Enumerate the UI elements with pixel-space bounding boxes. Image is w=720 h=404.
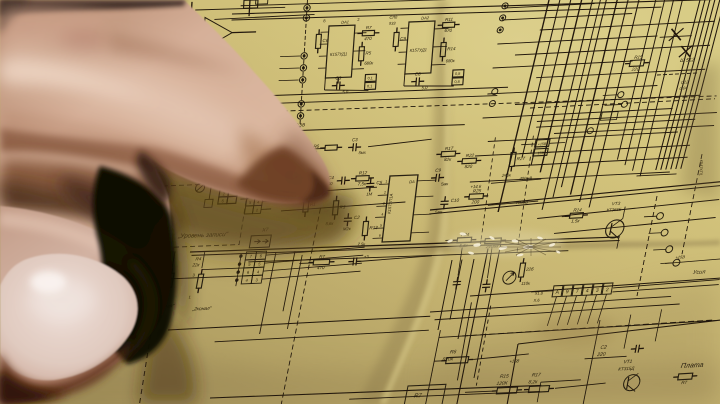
svg-text:Ш 512: Ш 512	[679, 57, 695, 64]
svg-text:„2конал": „2конал"	[191, 306, 212, 313]
svg-text:DА2: DА2	[421, 15, 430, 20]
svg-text:226: 226	[525, 267, 535, 272]
svg-text:5мк: 5мк	[435, 209, 443, 214]
svg-text:К157УД1: К157УД1	[410, 47, 428, 53]
svg-text:820: 820	[464, 164, 473, 169]
svg-text:+15В: +15В	[537, 142, 547, 146]
svg-text:933: 933	[389, 21, 397, 26]
svg-text:220: 220	[630, 66, 640, 71]
svg-text:R14: R14	[573, 207, 583, 212]
svg-text:220: 220	[596, 352, 607, 359]
svg-text:7,5к: 7,5к	[357, 181, 367, 186]
svg-text:R5: R5	[365, 50, 372, 55]
svg-text:+15В: +15В	[675, 254, 686, 259]
svg-text:R13: R13	[369, 225, 378, 230]
svg-text:R27: R27	[516, 156, 525, 161]
svg-text:С9: С9	[400, 36, 407, 41]
svg-text:СЛ0: СЛ0	[389, 14, 398, 19]
svg-text:Плата: Плата	[680, 362, 704, 370]
svg-text:0,1: 0,1	[367, 84, 373, 88]
svg-text:R14: R14	[447, 46, 456, 51]
svg-text:200: 200	[470, 199, 480, 204]
svg-text:С8: С8	[415, 71, 422, 76]
svg-text:+14,6: +14,6	[470, 184, 482, 189]
svg-text:К157УД1: К157УД1	[330, 51, 348, 57]
svg-text:5мк: 5мк	[441, 181, 449, 186]
svg-text:670: 670	[444, 28, 452, 33]
svg-text:R12: R12	[359, 170, 368, 175]
svg-text:R7: R7	[366, 25, 373, 30]
svg-text:470: 470	[317, 265, 326, 270]
svg-text:DА1: DА1	[341, 19, 349, 24]
svg-text:R17: R17	[531, 372, 541, 378]
svg-text:R7: R7	[319, 254, 326, 259]
svg-text:VТ1: VТ1	[623, 359, 633, 365]
svg-text:С3: С3	[352, 137, 359, 142]
svg-text:240к: 240к	[501, 172, 513, 177]
svg-text:1М: 1М	[366, 191, 373, 196]
svg-text:0,1: 0,1	[367, 76, 373, 80]
svg-text:R11: R11	[445, 17, 454, 22]
svg-text:R15: R15	[499, 374, 509, 380]
svg-text:R22: R22	[466, 153, 475, 158]
svg-text:0,8: 0,8	[454, 80, 460, 84]
svg-text:0,8: 0,8	[455, 72, 461, 76]
svg-text:VТ3: VТ3	[611, 201, 621, 206]
svg-text:470: 470	[364, 36, 372, 41]
svg-text:DА: DА	[409, 179, 415, 184]
svg-text:Усил: Усил	[691, 269, 706, 276]
svg-text:С10: С10	[450, 198, 459, 203]
svg-text:-15В: -15В	[536, 151, 545, 155]
svg-text:680к: 680к	[446, 58, 456, 63]
svg-text:R17: R17	[445, 146, 454, 151]
svg-text:С6: С6	[322, 38, 329, 43]
svg-text:680к: 680к	[364, 60, 374, 65]
